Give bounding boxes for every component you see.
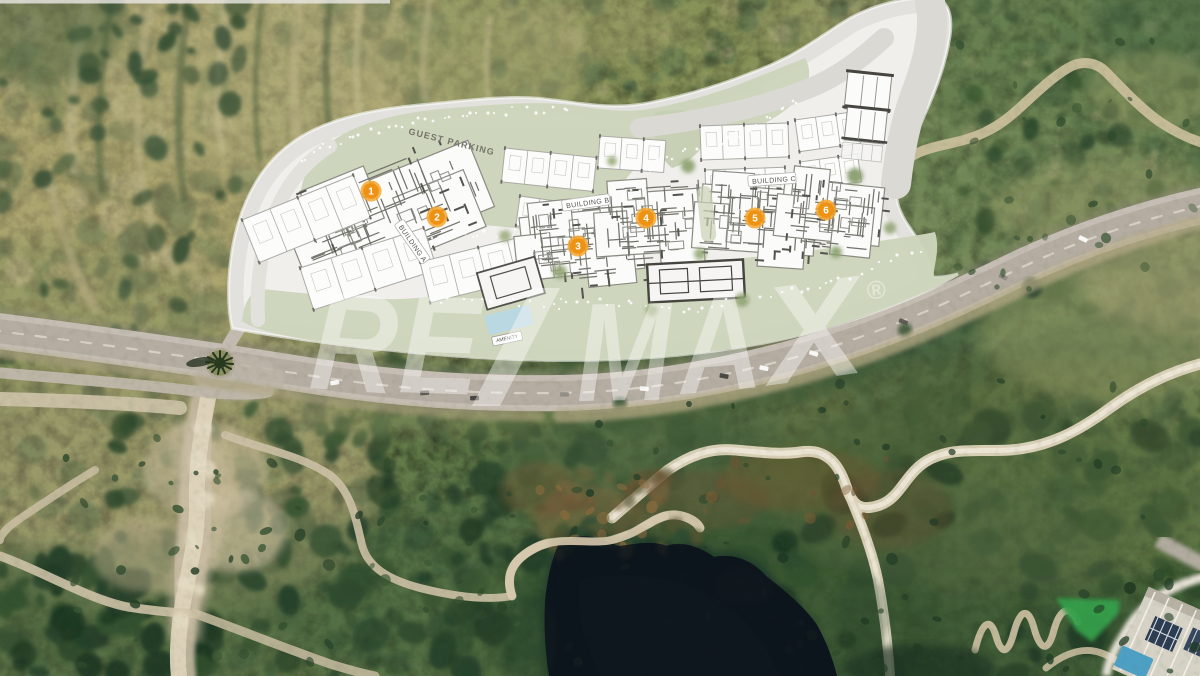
svg-text:3: 3 [575, 242, 581, 253]
svg-text:5: 5 [752, 214, 758, 225]
svg-text:A: A [669, 260, 767, 424]
svg-text:4: 4 [643, 214, 649, 225]
svg-text:2: 2 [434, 213, 440, 224]
svg-text:E: E [397, 265, 486, 425]
svg-text:R: R [306, 261, 403, 424]
svg-text:1: 1 [368, 187, 374, 198]
svg-text:6: 6 [823, 206, 829, 217]
svg-text:M: M [575, 272, 675, 431]
